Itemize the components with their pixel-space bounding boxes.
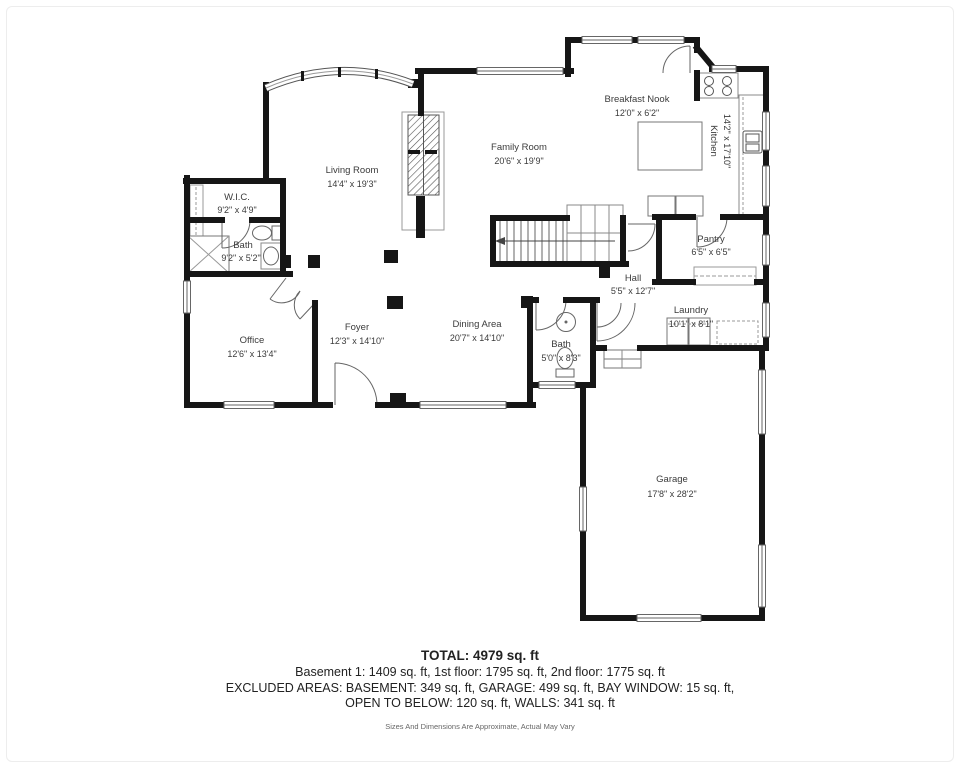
svg-text:9'2" x 5'2": 9'2" x 5'2": [221, 253, 260, 263]
sink-fixture-bath2: [557, 313, 576, 332]
nook-door: [663, 46, 690, 73]
room-label-family-room: Family Room 20'6" x 19'9": [491, 142, 547, 166]
room-label-laundry: Laundry 10'1" x 8'1": [669, 305, 713, 329]
room-label-hall: Hall 5'5" x 12'7": [611, 273, 655, 296]
disclaimer-text: Sizes And Dimensions Are Approximate, Ac…: [0, 722, 960, 731]
svg-text:20'6" x 19'9": 20'6" x 19'9": [494, 156, 543, 166]
svg-text:Laundry: Laundry: [674, 305, 709, 316]
floor-areas-text: Basement 1: 1409 sq. ft, 1st floor: 1795…: [0, 665, 960, 681]
svg-text:Dining Area: Dining Area: [452, 319, 502, 330]
room-label-dining-area: Dining Area 20'7" x 14'10": [450, 319, 504, 343]
laundry-closet: [717, 321, 758, 344]
room-label-garage: Garage 17'8" x 28'2": [647, 474, 696, 499]
svg-text:Pantry: Pantry: [697, 234, 725, 245]
svg-text:17'8" x 28'2": 17'8" x 28'2": [647, 489, 696, 499]
svg-text:5'5" x 12'7": 5'5" x 12'7": [611, 286, 655, 296]
svg-text:6'5" x 6'5": 6'5" x 6'5": [691, 247, 730, 257]
office-double-doors: [270, 278, 314, 319]
svg-text:Office: Office: [240, 335, 265, 346]
toilet-fixture-bath1: [253, 226, 282, 240]
room-label-wic: W.I.C. 9'2" x 4'9": [217, 192, 256, 215]
svg-text:12'3" x 14'10": 12'3" x 14'10": [330, 336, 384, 346]
svg-text:Living Room: Living Room: [326, 165, 379, 176]
svg-text:5'0" x 8'3": 5'0" x 8'3": [541, 353, 580, 363]
hall-door: [628, 224, 655, 251]
room-label-breakfast-nook: Breakfast Nook 12'0" x 6'2": [605, 94, 670, 118]
excluded-areas-text-line1: EXCLUDED AREAS: BASEMENT: 349 sq. ft, GA…: [0, 681, 960, 697]
svg-text:Bath: Bath: [551, 339, 571, 350]
svg-text:12'6" x 13'4": 12'6" x 13'4": [227, 349, 276, 359]
svg-text:10'1" x 8'1": 10'1" x 8'1": [669, 319, 713, 329]
svg-text:Garage: Garage: [656, 474, 688, 485]
staircase: [495, 205, 623, 263]
svg-text:W.I.C.: W.I.C.: [224, 192, 250, 203]
laundry-door: [597, 303, 635, 341]
room-label-foyer: Foyer 12'3" x 14'10": [330, 322, 384, 346]
svg-text:Breakfast Nook: Breakfast Nook: [605, 94, 670, 105]
excluded-areas-text-line2: OPEN TO BELOW: 120 sq. ft, WALLS: 341 sq…: [0, 696, 960, 712]
fridge-cabinets: [648, 196, 703, 216]
garage-steps: [604, 350, 641, 368]
closet-rod: [190, 185, 203, 237]
total-area-text: TOTAL: 4979 sq. ft: [0, 648, 960, 663]
room-label-office: Office 12'6" x 13'4": [227, 335, 276, 359]
floor-plan-page: Breakfast Nook 12'0" x 6'2" Kitchen 14'2…: [0, 0, 960, 768]
kitchen-counter: [739, 95, 766, 217]
vanity-sink-bath1: [261, 243, 283, 269]
coat-closet: [694, 267, 756, 285]
svg-text:20'7" x 14'10": 20'7" x 14'10": [450, 333, 504, 343]
svg-text:Hall: Hall: [625, 273, 641, 284]
bay-window: [266, 67, 413, 88]
room-label-living-room: Living Room 14'4" x 19'3": [326, 165, 379, 189]
stove-fixture: [698, 73, 738, 98]
fixtures-layer: [188, 73, 766, 377]
svg-text:12'0" x 6'2": 12'0" x 6'2": [615, 108, 659, 118]
svg-text:Kitchen: Kitchen: [708, 125, 719, 157]
svg-text:9'2" x 4'9": 9'2" x 4'9": [217, 205, 256, 215]
svg-text:14'4" x 19'3": 14'4" x 19'3": [327, 179, 376, 189]
svg-text:Bath: Bath: [233, 240, 253, 251]
room-label-kitchen: Kitchen 14'2" x 17'10": [708, 114, 732, 168]
svg-text:Foyer: Foyer: [345, 322, 369, 333]
area-summary: TOTAL: 4979 sq. ft Basement 1: 1409 sq. …: [0, 648, 960, 731]
svg-text:Family Room: Family Room: [491, 142, 547, 153]
svg-text:14'2" x 17'10": 14'2" x 17'10": [722, 114, 732, 168]
front-door: [335, 363, 377, 405]
kitchen-island: [638, 122, 702, 170]
